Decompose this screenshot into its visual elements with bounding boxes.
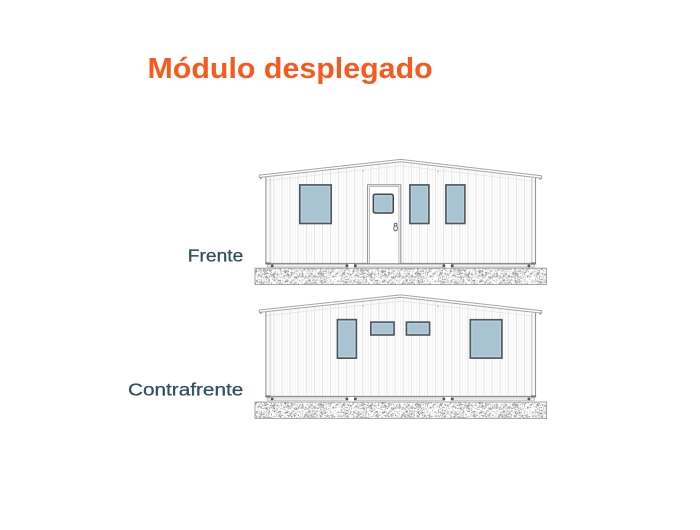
- svg-text:Módulo desplegado: Módulo desplegado: [148, 53, 433, 85]
- svg-text:Contrafrente: Contrafrente: [128, 380, 243, 400]
- svg-text:Frente: Frente: [188, 246, 244, 266]
